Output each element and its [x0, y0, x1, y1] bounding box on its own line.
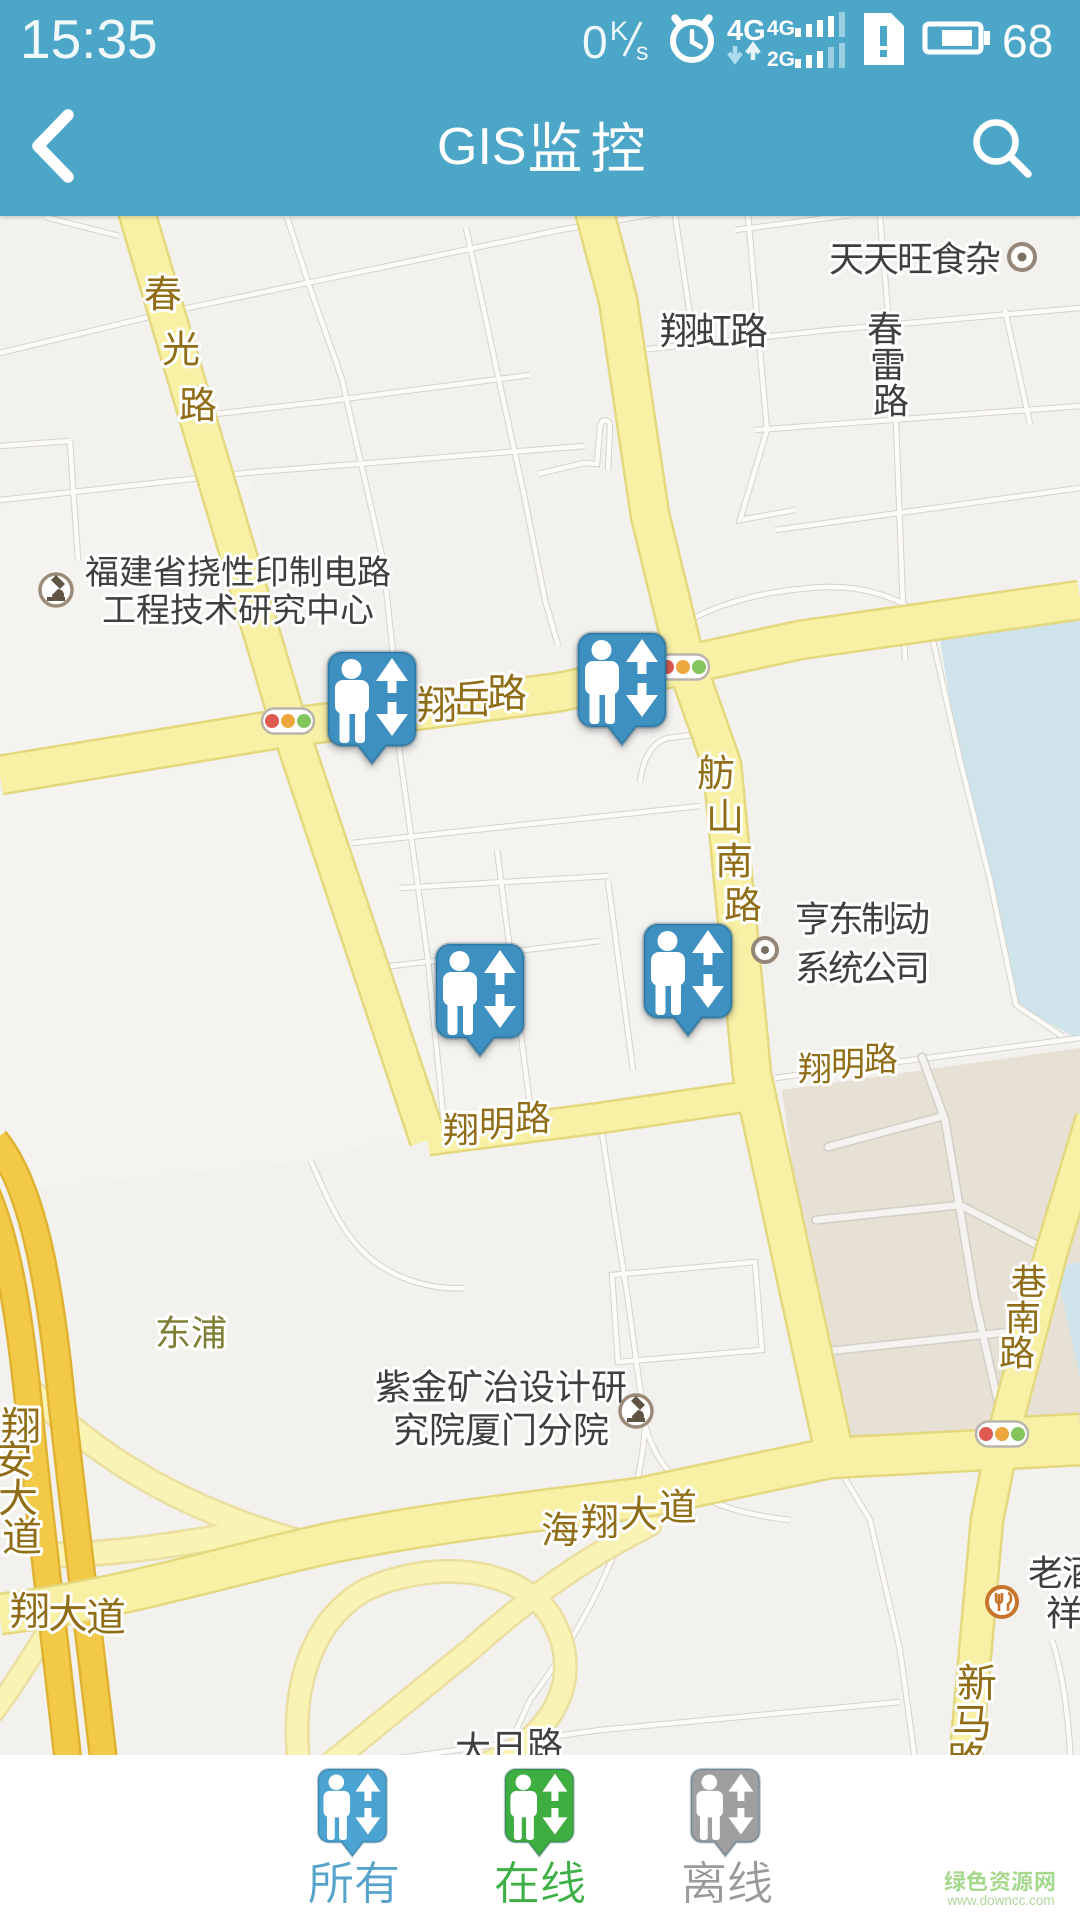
svg-text:2G: 2G	[767, 48, 795, 71]
svg-text:68: 68	[1002, 15, 1053, 67]
svg-text:4G: 4G	[727, 15, 766, 47]
svg-text:4G: 4G	[767, 17, 795, 40]
svg-text:K: K	[610, 16, 628, 46]
svg-text:0: 0	[582, 16, 608, 68]
svg-text:15:35: 15:35	[20, 8, 158, 70]
svg-text:GIS: GIS	[437, 118, 527, 176]
svg-text:s: s	[636, 38, 649, 66]
svg-text:www.downcc.com: www.downcc.com	[946, 1893, 1054, 1908]
